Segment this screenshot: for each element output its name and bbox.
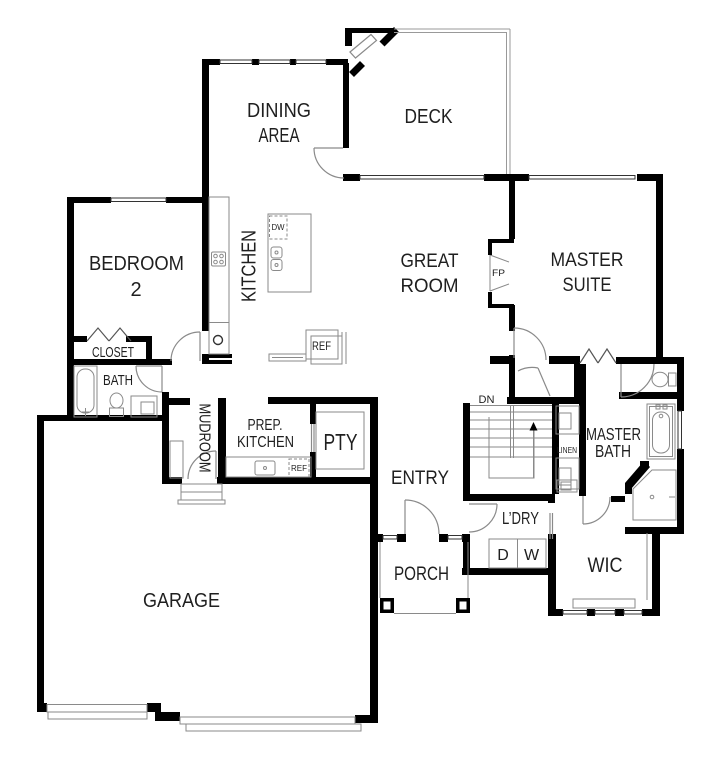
svg-text:REF: REF — [312, 339, 331, 353]
svg-text:D: D — [497, 547, 509, 564]
svg-text:DN: DN — [479, 394, 495, 406]
svg-text:LINEN: LINEN — [557, 446, 577, 455]
svg-text:BATH: BATH — [595, 441, 631, 461]
svg-text:PORCH: PORCH — [394, 564, 449, 585]
svg-text:W: W — [524, 547, 540, 564]
svg-text:SUITE: SUITE — [563, 274, 612, 296]
svg-text:KITCHEN: KITCHEN — [239, 230, 261, 302]
svg-text:2: 2 — [130, 279, 141, 301]
svg-text:ENTRY: ENTRY — [391, 467, 449, 489]
svg-text:L’DRY: L’DRY — [502, 508, 539, 528]
svg-text:KITCHEN: KITCHEN — [237, 434, 294, 451]
svg-text:ROOM: ROOM — [401, 275, 459, 297]
svg-text:REF: REF — [291, 464, 307, 473]
svg-text:WIC: WIC — [588, 553, 623, 577]
svg-text:DECK: DECK — [405, 106, 454, 128]
svg-text:FP: FP — [492, 268, 505, 279]
svg-text:DINING: DINING — [247, 100, 311, 122]
svg-text:MASTER: MASTER — [551, 249, 624, 271]
svg-text:PTY: PTY — [324, 429, 358, 455]
svg-text:GARAGE: GARAGE — [143, 589, 220, 612]
svg-text:MUDROOM: MUDROOM — [196, 404, 213, 473]
svg-text:PREP.: PREP. — [248, 417, 283, 434]
svg-text:BEDROOM: BEDROOM — [89, 253, 184, 275]
svg-text:GREAT: GREAT — [401, 250, 459, 272]
svg-text:AREA: AREA — [259, 125, 300, 147]
svg-text:DW: DW — [272, 223, 285, 232]
svg-text:BATH: BATH — [103, 373, 133, 389]
svg-text:CLOSET: CLOSET — [92, 345, 134, 361]
